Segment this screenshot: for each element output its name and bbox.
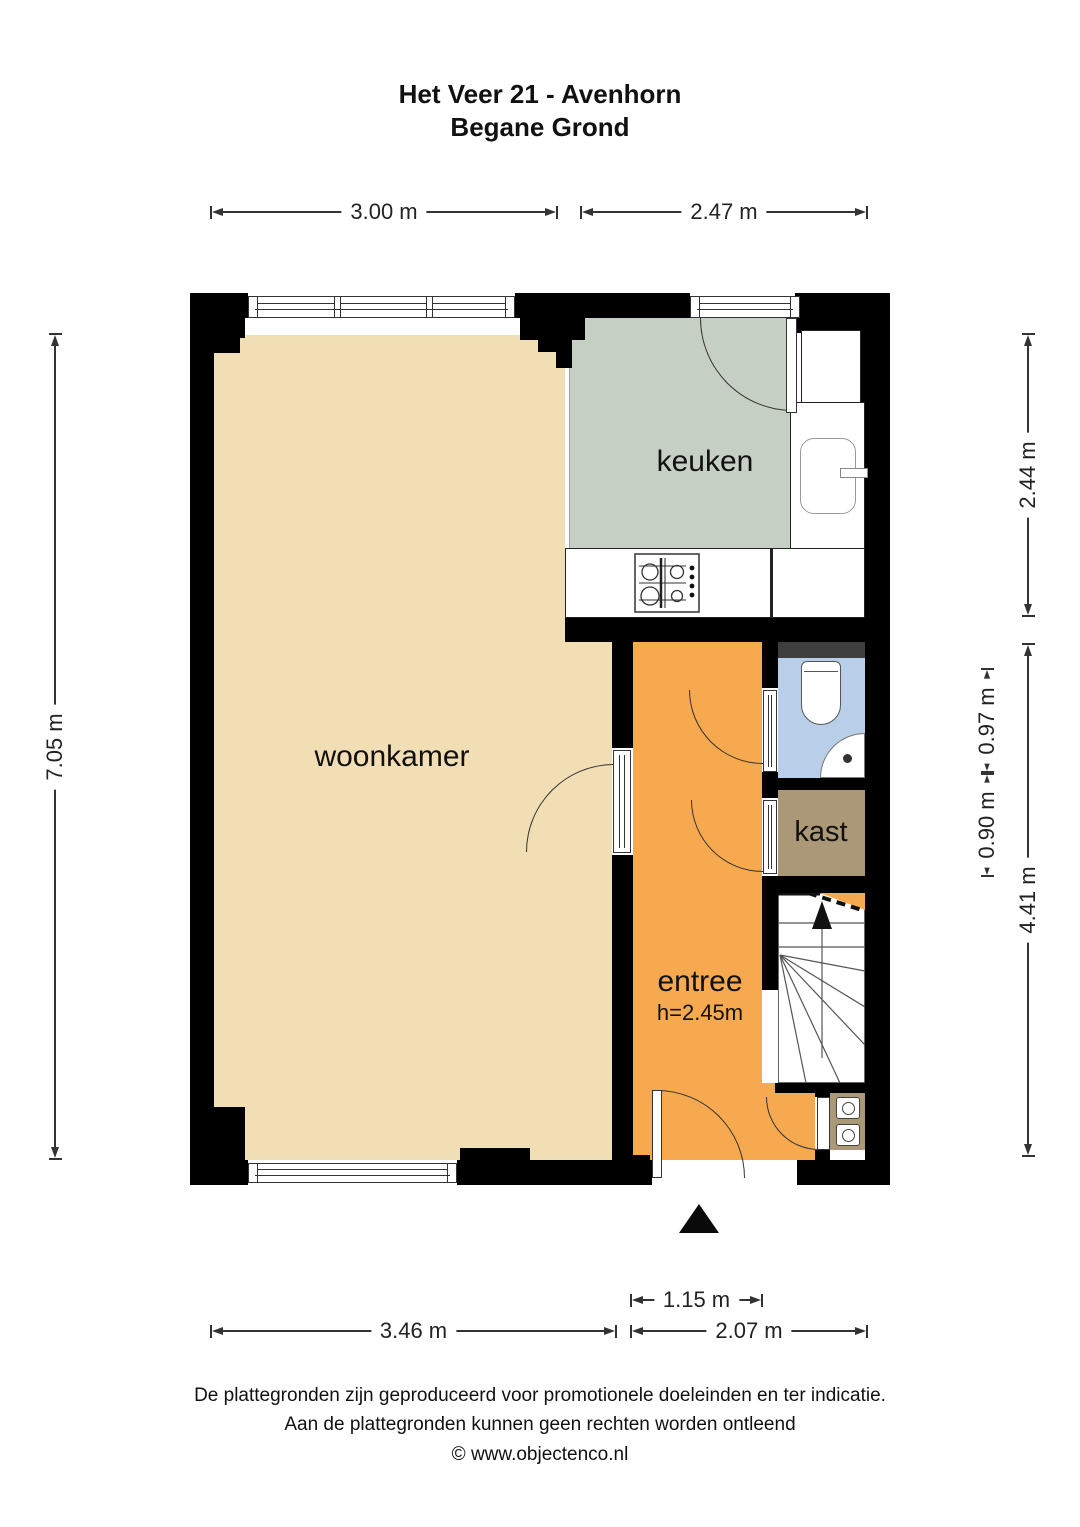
toilet-door-leaf bbox=[763, 690, 777, 772]
dimension-bottom-207: 2.07 m bbox=[630, 1320, 868, 1342]
window-jamb bbox=[248, 296, 258, 318]
wall-corner-tl-block bbox=[190, 293, 245, 338]
window-mullion bbox=[426, 296, 433, 318]
wall-woonkamer-entree-lower bbox=[612, 855, 633, 1185]
woonkamer-door-leaf bbox=[613, 750, 631, 853]
north-arrow-icon bbox=[679, 1204, 719, 1233]
room-divider-line bbox=[569, 368, 570, 548]
staircase bbox=[778, 893, 865, 1083]
dim-tick bbox=[615, 1325, 617, 1338]
wall-right bbox=[865, 293, 890, 1185]
window-woonkamer-top bbox=[248, 296, 515, 318]
dim-label: 1.15 m bbox=[654, 1287, 739, 1313]
wall-toilet-kast bbox=[762, 778, 865, 790]
dim-label: 2.07 m bbox=[706, 1318, 791, 1344]
kitchen-counter-bottom bbox=[565, 548, 865, 618]
kitchen-faucet-icon bbox=[840, 468, 868, 478]
wall-bottom-right-seg bbox=[797, 1160, 890, 1185]
window-jamb bbox=[505, 296, 515, 318]
wall-step-3 bbox=[556, 352, 572, 368]
wall-tr-side bbox=[858, 330, 890, 408]
wall-top-mid-seg bbox=[515, 293, 690, 318]
wall-meterkast-jamb-top bbox=[815, 1083, 830, 1097]
floorplan: woonkamer keuken entree h=2.45m kast bbox=[0, 0, 1080, 1527]
dimension-bottom-346: 3.46 m bbox=[210, 1320, 617, 1342]
dimension-bottom-115: 1.15 m bbox=[630, 1289, 763, 1311]
wall-meterkast-jamb-bottom bbox=[815, 1150, 830, 1162]
window-keuken-door-glazing bbox=[690, 296, 800, 318]
entree-label: entree bbox=[657, 965, 742, 999]
dim-arrow-left-icon bbox=[632, 1296, 643, 1304]
wall-step-1 bbox=[520, 318, 585, 340]
front-door-leaf bbox=[652, 1090, 662, 1178]
meter-icon bbox=[836, 1124, 860, 1146]
wall-entree-stairs bbox=[762, 876, 778, 990]
window-woonkamer-bottom bbox=[248, 1163, 457, 1183]
wall-left bbox=[190, 293, 214, 1185]
toilet-icon bbox=[801, 661, 841, 725]
wall-entree-step bbox=[633, 1155, 650, 1185]
wall-step-2 bbox=[538, 338, 572, 352]
counter-divider bbox=[770, 548, 773, 618]
window-jamb bbox=[690, 296, 700, 318]
window-jamb bbox=[447, 1163, 457, 1183]
meter-icon bbox=[836, 1097, 860, 1119]
wall-entree-toilet-upper bbox=[762, 642, 778, 688]
keuken-label: keuken bbox=[657, 445, 754, 479]
kast-door-leaf bbox=[763, 800, 777, 874]
disclaimer-line-2: Aan de plattegronden kunnen geen rechten… bbox=[0, 1410, 1080, 1439]
window-mullion bbox=[334, 296, 341, 318]
disclaimer-line-1: De plattegronden zijn geproduceerd voor … bbox=[0, 1381, 1080, 1410]
disclaimer: De plattegronden zijn geproduceerd voor … bbox=[0, 1381, 1080, 1469]
kast-label: kast bbox=[794, 816, 847, 849]
window-jamb bbox=[790, 296, 800, 318]
wall-corner-tr-block bbox=[795, 293, 890, 333]
stove-icon bbox=[630, 552, 705, 614]
keuken-door-leaf bbox=[786, 318, 797, 413]
wall-corner-tl-notch bbox=[214, 337, 240, 353]
duct-shaft bbox=[778, 642, 868, 658]
dim-arrow-right-icon bbox=[855, 1327, 866, 1335]
meterkast-door-leaf bbox=[817, 1097, 830, 1150]
room-woonkamer-ext bbox=[565, 642, 612, 1160]
dim-arrow-left-icon bbox=[212, 1327, 223, 1335]
dim-arrow-right-icon bbox=[750, 1296, 761, 1304]
dim-arrow-left-icon bbox=[632, 1327, 643, 1335]
wall-corner-bl-block bbox=[190, 1107, 245, 1185]
copyright: © www.objectenco.nl bbox=[0, 1440, 1080, 1469]
woonkamer-label: woonkamer bbox=[314, 740, 469, 774]
window-jamb bbox=[248, 1163, 258, 1183]
kitchen-appliance bbox=[801, 330, 861, 404]
dim-tick bbox=[866, 1325, 868, 1338]
dim-tick bbox=[761, 1294, 763, 1307]
dim-label: 3.46 m bbox=[371, 1318, 456, 1344]
wall-woonkamer-entree-upper bbox=[612, 642, 633, 748]
wall-bottom-block bbox=[460, 1148, 530, 1185]
wall-below-kitchen bbox=[565, 618, 890, 642]
wall-kast-stairs bbox=[778, 876, 865, 893]
entree-height-note: h=2.45m bbox=[657, 1000, 743, 1026]
dim-arrow-right-icon bbox=[604, 1327, 615, 1335]
